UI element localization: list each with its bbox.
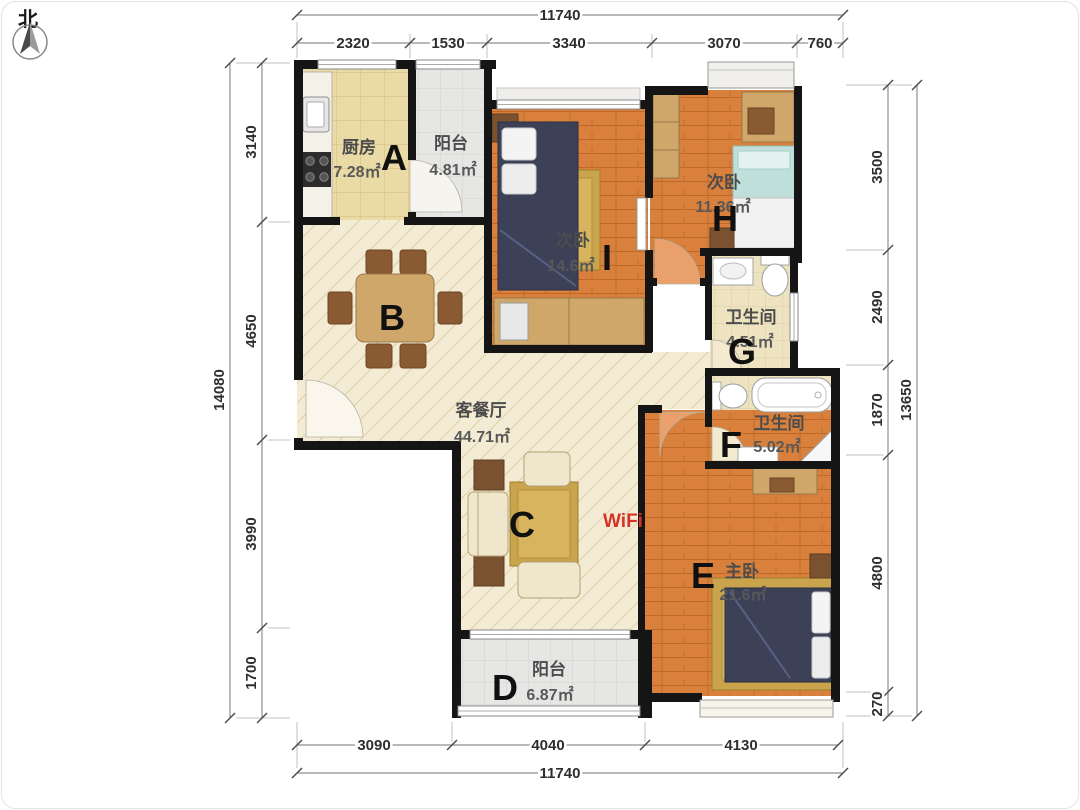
bedroom-h-wardrobe	[653, 94, 679, 178]
bedroom-h-name: 次卧	[707, 172, 741, 192]
master-name: 主卧	[725, 561, 759, 581]
wifi-label: WiFi	[603, 511, 643, 532]
dim-left-total: 14080	[211, 369, 228, 411]
zone-a-letter: A	[381, 137, 407, 178]
bedroom-h-chair	[748, 108, 774, 134]
balcony-bottom-name: 阳台	[532, 659, 566, 679]
dim-top-seg-1: 1530	[431, 35, 464, 52]
dim-right-seg-2: 1870	[869, 393, 886, 426]
zone-b-letter: B	[379, 297, 405, 338]
side-table-top	[474, 460, 504, 490]
dim-bottom-seg-1: 4040	[531, 737, 564, 754]
side-table-bottom	[474, 556, 504, 586]
bath-f-toilet	[719, 384, 747, 408]
bedroom-i-door-leaf	[637, 198, 646, 250]
zone-g-letter: G	[728, 331, 756, 372]
dim-left-seg-0: 3140	[243, 125, 260, 158]
dim-right-seg-0: 3500	[869, 150, 886, 183]
floorplan-canvas: 厨房 7.28㎡ A 阳台 4.81㎡ 次卧 14.6㎡ I 次卧 11.36㎡…	[0, 0, 1080, 810]
zone-d-letter: D	[492, 667, 518, 708]
bath-f-name: 卫生间	[754, 413, 805, 433]
bath-g-name: 卫生间	[726, 307, 777, 327]
zone-e-letter: E	[691, 555, 715, 596]
bedroom-i-area: 14.6㎡	[547, 256, 594, 275]
dim-left-seg-2: 3990	[243, 517, 260, 550]
balcony-top-area: 4.81㎡	[429, 160, 476, 179]
hallway-floor	[648, 352, 712, 409]
dim-right-seg-3: 4800	[869, 556, 886, 589]
dim-left-seg-3: 1700	[243, 656, 260, 689]
dim-right-total: 13650	[898, 379, 915, 421]
balcony-top-name: 阳台	[434, 133, 468, 153]
living-name: 客餐厅	[455, 400, 507, 420]
dim-left-seg-1: 4650	[243, 314, 260, 347]
dim-top-total: 11740	[540, 7, 581, 24]
bedroom-i-name: 次卧	[556, 230, 590, 250]
dim-right-seg-4: 270	[869, 691, 886, 716]
balcony-bottom-area: 6.87㎡	[526, 685, 573, 704]
floorplan-svg: 厨房 7.28㎡ A 阳台 4.81㎡ 次卧 14.6㎡ I 次卧 11.36㎡…	[0, 0, 1080, 810]
dim-bottom-seg-0: 3090	[357, 737, 390, 754]
zone-c-letter: C	[509, 504, 535, 545]
bedroom-i-sill	[497, 88, 640, 100]
zone-i-letter: I	[602, 237, 612, 278]
dim-bottom-total: 11740	[540, 765, 581, 782]
kitchen-area: 7.28㎡	[333, 162, 380, 181]
loveseat-bottom	[518, 562, 580, 598]
dim-top-seg-3: 3070	[707, 35, 740, 52]
bedroom-h-bay-window	[708, 62, 794, 88]
dim-bottom-seg-2: 4130	[724, 737, 757, 754]
zone-f-letter: F	[720, 424, 742, 465]
dim-top-seg-4: 760	[807, 35, 832, 52]
sofa	[468, 492, 508, 556]
master-area: 21.6㎡	[719, 585, 766, 604]
kitchen-counter	[299, 72, 332, 218]
dim-top-seg-2: 3340	[552, 35, 585, 52]
zone-h-letter: H	[712, 198, 738, 239]
kitchen-name: 厨房	[342, 137, 376, 157]
dim-right-seg-1: 2490	[869, 290, 886, 323]
bath-f-area: 5.02㎡	[753, 437, 800, 456]
dim-top-seg-0: 2320	[336, 35, 369, 52]
armchair-top	[524, 452, 570, 486]
living-area: 44.71㎡	[454, 427, 510, 446]
